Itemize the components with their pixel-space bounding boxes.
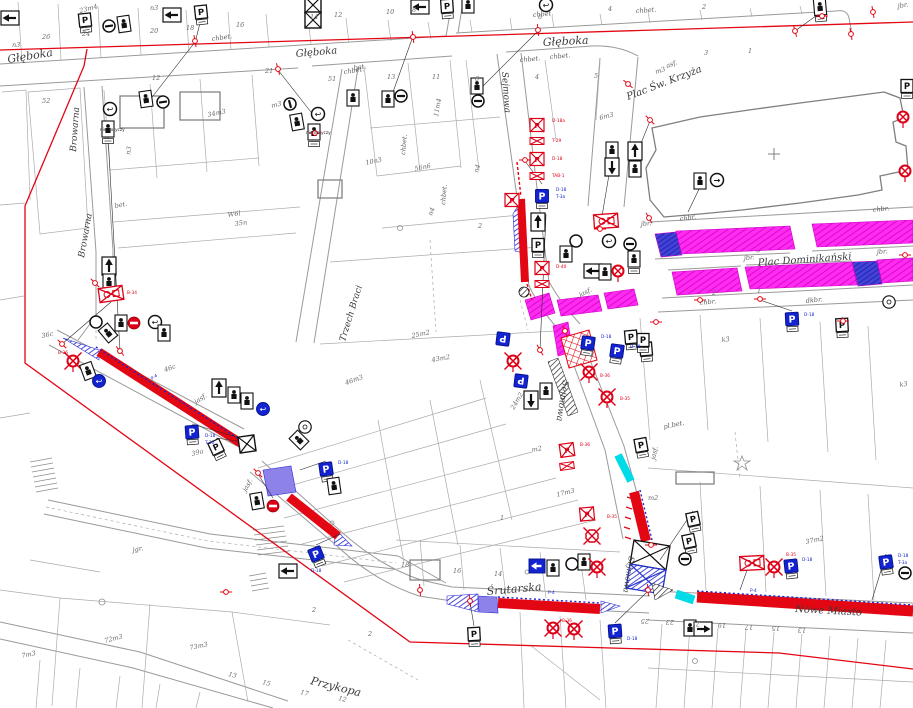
- stairs-icon: [249, 573, 269, 591]
- parcel-number: 13: [228, 670, 238, 680]
- street-label: Browarna: [69, 107, 82, 153]
- traffic-sign-pBlackPlate: P: [194, 5, 208, 25]
- parcel-number: 2: [367, 630, 372, 638]
- traffic-sign-noStop: [900, 166, 911, 183]
- traffic-sign-signRedX: P: [579, 506, 594, 521]
- traffic-sign-pBlackPlate: P: [441, 0, 454, 19]
- work-bar: [498, 603, 600, 609]
- survey-marker-icon: [650, 320, 662, 325]
- street-label: Nowe Miasto: [794, 604, 862, 619]
- traffic-sign-noStopX: [581, 364, 598, 384]
- surface-label: jbr.: [742, 253, 755, 262]
- parcel-number: 34m3: [207, 107, 227, 119]
- traffic-sign-rectGlyph: [382, 91, 394, 107]
- manhole-icon: [99, 599, 105, 605]
- parcel-number: n3: [124, 146, 133, 156]
- parcel-number: n3: [12, 41, 20, 49]
- parcel-number: 72m3: [103, 632, 123, 645]
- traffic-sign-rectGlyph: [599, 264, 611, 280]
- parcel-number: 43m2: [430, 353, 451, 364]
- parcel-number: 12: [152, 74, 160, 82]
- traffic-sign-circleArrow: ↩: [104, 103, 117, 116]
- traffic-sign-arrowBox: [163, 8, 181, 22]
- sign-code-label: B-34: [127, 290, 137, 296]
- traffic-sign-pBluePlate: P: [785, 312, 799, 332]
- traffic-sign-rectGlyph: [250, 492, 265, 510]
- traffic-sign-xBox: [305, 0, 321, 13]
- parcel-number: 14: [310, 13, 318, 21]
- traffic-sign-noStopX: [766, 559, 783, 579]
- sign-code-label: B-36: [58, 350, 68, 356]
- traffic-sign-rectGlyph: [241, 393, 253, 409]
- traffic-sign-noStop: [613, 266, 624, 283]
- parcel-number: 6: [538, 13, 542, 21]
- sign-code-label: T-30: [204, 440, 215, 446]
- traffic-sign-signRedX: P: [530, 118, 544, 132]
- survey-marker-icon: [622, 78, 634, 89]
- work-bar: [289, 497, 338, 536]
- survey-marker-icon: [899, 253, 911, 258]
- work-bar: [521, 199, 525, 282]
- traffic-sign-arrowBox: [1, 11, 19, 25]
- traffic-sign-signRedX: P: [505, 193, 519, 207]
- parcel-number: m3: [270, 100, 282, 110]
- traffic-sign-octX: [584, 528, 601, 545]
- street-label: Głęboka: [542, 34, 588, 49]
- surface-label: jasf.: [240, 477, 255, 494]
- traffic-sign-rectGlyph: [547, 560, 559, 576]
- traffic-sign-rectGlyphPlate: [813, 0, 827, 22]
- surface-label: jasf.: [191, 392, 208, 407]
- work-bar: [634, 492, 646, 541]
- stairs-icon: [30, 458, 58, 492]
- boundary-line-perimeter: [25, 49, 913, 669]
- parcel-number: 24: [81, 30, 90, 38]
- parcel-number: 1: [748, 47, 752, 55]
- sign-code-label: B-36: [562, 618, 572, 624]
- traffic-sign-arrowBox: [605, 158, 619, 176]
- surface-label: chbet.: [519, 54, 540, 64]
- parcel-number: m2: [531, 444, 543, 454]
- surface-label: pl.bet.: [663, 419, 685, 431]
- sign-code-label: P-4: [548, 590, 555, 596]
- survey-marker-icon: [870, 6, 877, 19]
- traffic-sign-arrowBox: [524, 391, 538, 409]
- parcel-number: 14: [494, 570, 502, 578]
- traffic-sign-rectGlyph: [540, 383, 552, 399]
- traffic-sign-signRedX: P: [535, 261, 549, 275]
- street-label: Sejmowa: [499, 72, 512, 114]
- surface-label: jbr.: [895, 1, 909, 11]
- svg-text:P: P: [81, 16, 88, 27]
- parcel-number: 46m3: [343, 373, 364, 387]
- parcel-number: 18: [186, 24, 194, 32]
- surface-label: jbr.: [875, 247, 888, 256]
- traffic-sign-arrowBox: [628, 142, 642, 160]
- parcel-number: n4: [472, 163, 482, 173]
- surface-label: chbr.: [872, 204, 889, 214]
- traffic-sign-circleBar: [624, 238, 636, 250]
- parcel-number: 35n: [234, 218, 247, 228]
- surface-label: chbet.: [439, 184, 449, 205]
- traffic-sign-redPlateX: [530, 173, 544, 180]
- traffic-sign-pBlackPlate: P: [468, 627, 481, 647]
- traffic-sign-rectGlyph: [462, 0, 474, 13]
- parcel-number: 18: [401, 561, 409, 569]
- traffic-sign-blobHatch: [519, 287, 529, 297]
- traffic-sign-signRedX: P: [559, 442, 575, 458]
- parcel-number: bet.: [114, 200, 128, 210]
- parcel-number: 15: [772, 624, 780, 632]
- sign-code-label: D-40: [556, 264, 567, 270]
- parcel-number: 17m3: [555, 486, 575, 499]
- parking-bay: [676, 226, 795, 254]
- survey-marker-icon: [535, 24, 541, 36]
- traffic-sign-circle: [570, 235, 582, 247]
- sign-code-label: D-18: [630, 344, 641, 350]
- svg-text:P: P: [517, 374, 525, 386]
- traffic-sign-rectGlyph: [606, 142, 618, 158]
- parcel-number: 6: [475, 75, 479, 83]
- parcel-number: n3: [150, 4, 158, 12]
- parcel-number: 8: [412, 6, 416, 14]
- sign-code-label: B-35: [607, 514, 617, 520]
- map-canvas[interactable]: PPP↩↩↩PPPPPP↩→PPPPPPPPPPPPPPPPPPP↩↩↩PPPP…: [0, 0, 913, 708]
- parcel-number: 19: [718, 621, 726, 629]
- parcel-number: 23: [666, 618, 675, 626]
- parcel-number: 10n3: [365, 156, 383, 167]
- surface-label: chbet.: [549, 51, 570, 61]
- traffic-sign-arrowCircle: →: [711, 174, 724, 187]
- parcel-number: 12: [338, 694, 348, 704]
- parcel-number: 11m4: [432, 98, 443, 118]
- sign-code-label: B-35: [620, 396, 630, 402]
- traffic-sign-noStopX: [599, 389, 616, 409]
- sign-code-label: D-18a: [552, 118, 565, 124]
- parcel-number: 1: [500, 514, 504, 522]
- parcel-number: 24m2: [508, 391, 525, 412]
- parcel-number: 73m3: [189, 640, 209, 652]
- svg-text:→: →: [714, 176, 721, 185]
- sign-code-label: B-35: [786, 552, 796, 558]
- traffic-sign-pBlue: P: [496, 332, 510, 346]
- parcel-number: 11: [432, 73, 440, 81]
- traffic-sign-signRedX: P: [530, 152, 544, 166]
- boundary-line-top: [0, 22, 913, 50]
- survey-marker-icon: [754, 297, 766, 302]
- traffic-sign-arrowBox: [279, 564, 297, 578]
- svg-text:↩: ↩: [315, 110, 322, 119]
- parcel-number: 37m2: [805, 534, 825, 546]
- survey-marker-icon: [252, 467, 264, 479]
- survey-marker-icon: [417, 584, 423, 596]
- traffic-sign-redPlateX: [530, 138, 544, 145]
- traffic-sign-rectGlyph: [115, 315, 127, 331]
- map-viewport[interactable]: Projekt organizacji ruchu — plan sytuacy…: [0, 0, 913, 708]
- sign-code-label: D-18: [556, 187, 567, 193]
- svg-text:P: P: [628, 333, 635, 344]
- traffic-sign-rectGlyph: [347, 90, 359, 106]
- traffic-sign-rectGlyph: [629, 161, 641, 177]
- traffic-sign-xBox: [238, 435, 256, 453]
- traffic-sign-noStopX: [545, 620, 562, 640]
- survey-marker-icon: [410, 31, 416, 44]
- parcel-number: 16: [236, 21, 244, 29]
- traffic-sign-rectGlyph: [290, 113, 305, 131]
- parcel-number: W6l: [227, 209, 241, 219]
- parcel-number: 26: [41, 33, 50, 41]
- parcel-number: 2: [311, 606, 316, 614]
- traffic-sign-well: [883, 296, 895, 308]
- parcel-number: 3: [704, 49, 708, 57]
- parcel-number: 36c: [41, 330, 55, 340]
- raised-crossing-cyan: [676, 594, 694, 600]
- surface-label: chbet.: [636, 6, 657, 15]
- sign-code-label: D-18: [898, 553, 909, 559]
- parcel-number: m2: [648, 494, 658, 502]
- traffic-sign-blueCircleArrow: ↩: [93, 375, 106, 388]
- svg-text:P: P: [611, 626, 619, 637]
- traffic-sign-arrowBox: [531, 213, 545, 231]
- sign-code-label: D-18: [601, 334, 612, 340]
- sign-code-label: TAB-1: [551, 173, 565, 179]
- dashed-parcels: [46, 240, 740, 680]
- parking-bay: [525, 293, 555, 320]
- parking-bay: [604, 289, 638, 309]
- traffic-sign-pBlackPlate: P: [532, 239, 544, 258]
- street-label: Browarna: [77, 213, 95, 260]
- sign-code-label: D-18: [338, 460, 349, 466]
- surface-label: chbet.: [399, 134, 409, 155]
- parking-bay: [877, 258, 913, 283]
- svg-text:P: P: [197, 8, 204, 19]
- traffic-sign-rectGlyph: [158, 325, 170, 341]
- traffic-sign-pBlackPlate: P: [682, 533, 698, 554]
- survey-marker-icon: [220, 590, 232, 595]
- traffic-sign-noEntry: [267, 500, 279, 512]
- sign-code-label: P-4: [150, 373, 159, 382]
- traffic-sign-circleBar: [283, 97, 298, 112]
- svg-text:↩: ↩: [543, 1, 550, 10]
- traffic-sign-pBlue: P: [514, 374, 528, 388]
- parcel-number: 1: [757, 287, 761, 295]
- center-parcel-fan: [258, 331, 596, 582]
- traffic-sign-signRedXW: [98, 285, 124, 302]
- buildings: [120, 92, 908, 580]
- survey-marker-icon: [89, 277, 101, 289]
- traffic-sign-circleBar: [899, 567, 911, 579]
- traffic-sign-noStop: [898, 112, 909, 129]
- svg-text:P: P: [471, 630, 478, 640]
- parking-bay: [672, 268, 742, 295]
- surface-label: jbr.: [638, 219, 651, 228]
- church-cross-icon: [768, 148, 780, 160]
- sign-code-label: B-36: [600, 373, 610, 379]
- raised-patch-lilac: [263, 466, 296, 496]
- svg-text:P: P: [904, 82, 910, 92]
- parcel-number: 17: [744, 623, 753, 631]
- parcel-number: 2: [477, 222, 482, 230]
- surface-label: dkbr.: [805, 295, 822, 305]
- survey-marker-icon: [644, 114, 656, 126]
- star-icon: [734, 456, 750, 470]
- traffic-sign-rectGlyph: [139, 90, 153, 108]
- survey-marker-icon: [791, 25, 799, 38]
- svg-text:P: P: [788, 314, 796, 325]
- parcel-number: m3: [654, 65, 666, 76]
- parking-bay: [812, 220, 913, 247]
- bottom-left-parcels: [0, 560, 330, 708]
- traffic-sign-circleBar: [472, 95, 484, 107]
- svg-text:↩: ↩: [260, 405, 267, 414]
- traffic-sign-arrowBox: [102, 257, 116, 275]
- parcel-number: 46c: [162, 362, 177, 374]
- traffic-sign-noStopX: [589, 559, 606, 579]
- svg-text:P: P: [444, 2, 451, 12]
- svg-text:P: P: [539, 191, 546, 202]
- traffic-sign-rectGlyph: [327, 477, 341, 495]
- street-label: Przykopa: [308, 674, 362, 699]
- parcel-number: 4: [607, 5, 612, 13]
- sign-code-label: D-18: [205, 433, 216, 439]
- sign-code-label: T-3a: [555, 194, 566, 200]
- top-band-parcels: [18, 2, 802, 63]
- traffic-sign-pBluePlate: P: [784, 559, 799, 579]
- parcel-number: 56n6: [414, 162, 432, 173]
- parcel-number: 13: [798, 626, 806, 634]
- raised-crossing-cyan: [618, 455, 631, 481]
- parcel-number: 17: [300, 688, 311, 698]
- traffic-sign-pBlackPlate: P: [634, 438, 649, 459]
- traffic-sign-blueCircleArrow: ↩: [257, 403, 270, 416]
- traffic-sign-rectGlyph: [117, 15, 131, 33]
- surface-label: chbr.: [679, 213, 696, 223]
- traffic-sign-rectGlyph: [228, 387, 240, 403]
- sign-code-label: D-18: [311, 568, 322, 574]
- sign-code-label: D-18: [804, 312, 815, 318]
- sign-code-label: D-18: [627, 636, 638, 642]
- parcel-number: 2: [711, 289, 716, 297]
- sign-code-label: D-18: [552, 156, 563, 162]
- traffic-sign-noEntry: [128, 317, 140, 329]
- traffic-sign-pBluePlate: P: [879, 555, 895, 576]
- parcel-number: n4: [426, 206, 436, 217]
- traffic-sign-rectGlyph: [578, 554, 590, 570]
- traffic-sign-circleArrow: ↩: [312, 108, 325, 121]
- parcel-number: 13: [387, 73, 395, 81]
- svg-text:P: P: [188, 427, 196, 438]
- street-label: Głęboka: [295, 45, 337, 60]
- parcel-number: 21: [264, 67, 273, 75]
- svg-text:↩: ↩: [107, 105, 114, 114]
- sign-code-label: nie dotyczy: [100, 127, 125, 133]
- svg-text:P: P: [640, 336, 646, 346]
- traffic-sign-pBlackPlate: P: [901, 80, 913, 99]
- surface-label: chbet.: [211, 32, 232, 43]
- sign-code-label: T-3a: [897, 560, 908, 566]
- traffic-sign-redPlateX: [535, 281, 549, 288]
- svg-text:P: P: [535, 241, 541, 251]
- traffic-sign-circleArrow: ↩: [603, 235, 616, 248]
- traffic-sign-redPlateX: [560, 462, 575, 471]
- parcel-number: 25: [641, 617, 650, 625]
- survey-marker-icon: [519, 158, 531, 163]
- raised-patch-lilac: [478, 596, 498, 613]
- traffic-sign-circleBar: [679, 553, 691, 565]
- sign-code-label: D-18: [802, 557, 813, 563]
- traffic-sign-well: [299, 421, 311, 433]
- surface-label: jgr.: [130, 544, 144, 554]
- traffic-sign-pBluePlate: P: [608, 624, 622, 644]
- traffic-sign-circle: [566, 558, 578, 570]
- traffic-sign-rectGlyphPlate: [628, 251, 640, 274]
- parcel-number: 16: [453, 567, 461, 575]
- street-label: Trzech Braci: [338, 284, 365, 343]
- parcel-number: 12: [334, 11, 342, 19]
- surface-label: chbr.: [699, 297, 716, 307]
- traffic-sign-arrowBox: [212, 379, 226, 397]
- sign-code-label: T-29: [551, 138, 562, 144]
- sign-code-label: P-4: [750, 588, 757, 594]
- traffic-sign-pBluePlate: P: [609, 344, 625, 365]
- traffic-sign-signRedXW: [594, 213, 619, 229]
- traffic-sign-circleBar: [156, 95, 170, 109]
- sign-code-label: B-36: [580, 442, 590, 448]
- manhole-icon: [525, 570, 529, 574]
- traffic-sign-arrowBoxBlue: [529, 559, 545, 573]
- street-label: Śrutarska: [486, 579, 542, 598]
- svg-text:P: P: [787, 561, 795, 573]
- traffic-sign-pBluePlate: P: [185, 425, 199, 445]
- surface-label: jasf.: [649, 446, 660, 463]
- parcel-number: k3: [899, 380, 908, 389]
- svg-text:P: P: [499, 332, 507, 344]
- street-label: Sejmowa: [554, 380, 570, 422]
- parcel-number: 2: [701, 3, 706, 11]
- traffic-sign-noStopX: [505, 353, 522, 373]
- parcel-number: 5: [594, 72, 598, 80]
- parcel-number: 7m3: [21, 649, 37, 660]
- parcel-number: 10: [386, 8, 394, 16]
- svg-text:↩: ↩: [606, 237, 613, 246]
- traffic-sign-circleBar: [102, 19, 116, 33]
- traffic-sign-pBluePlate: P: [536, 190, 549, 209]
- traffic-sign-rectGlyph: [694, 173, 706, 189]
- parcel-number: 4: [534, 73, 539, 81]
- parcel-number: 21: [692, 620, 701, 628]
- sign-code-label: nie dotyczy: [306, 130, 331, 136]
- traffic-sign-signRedXW: [740, 555, 765, 570]
- surface-label: asf.: [665, 58, 678, 69]
- parcel-number: k3: [721, 335, 730, 344]
- parcel-number: 6m3: [598, 110, 614, 121]
- parcel-number: 39a: [190, 447, 204, 458]
- stairs-hatching: [30, 458, 289, 591]
- parcel-number: 20: [149, 27, 158, 35]
- traffic-sign-circleBar: [395, 90, 407, 102]
- parcel-number: 52: [42, 97, 50, 105]
- manhole-icon: [693, 659, 698, 664]
- traffic-sign-pBluePlate: P: [308, 546, 327, 568]
- svg-text:↩: ↩: [96, 377, 103, 386]
- traffic-sign-rectGlyph: [560, 246, 572, 262]
- traffic-sign-pBlackPlate: P: [686, 511, 702, 532]
- surface-label: chbet.: [532, 9, 553, 19]
- parcel-number: 51: [328, 75, 336, 83]
- parcel-number: 15: [262, 678, 272, 688]
- ramp-wedge: [447, 594, 478, 612]
- traffic-sign-circle: [90, 316, 102, 328]
